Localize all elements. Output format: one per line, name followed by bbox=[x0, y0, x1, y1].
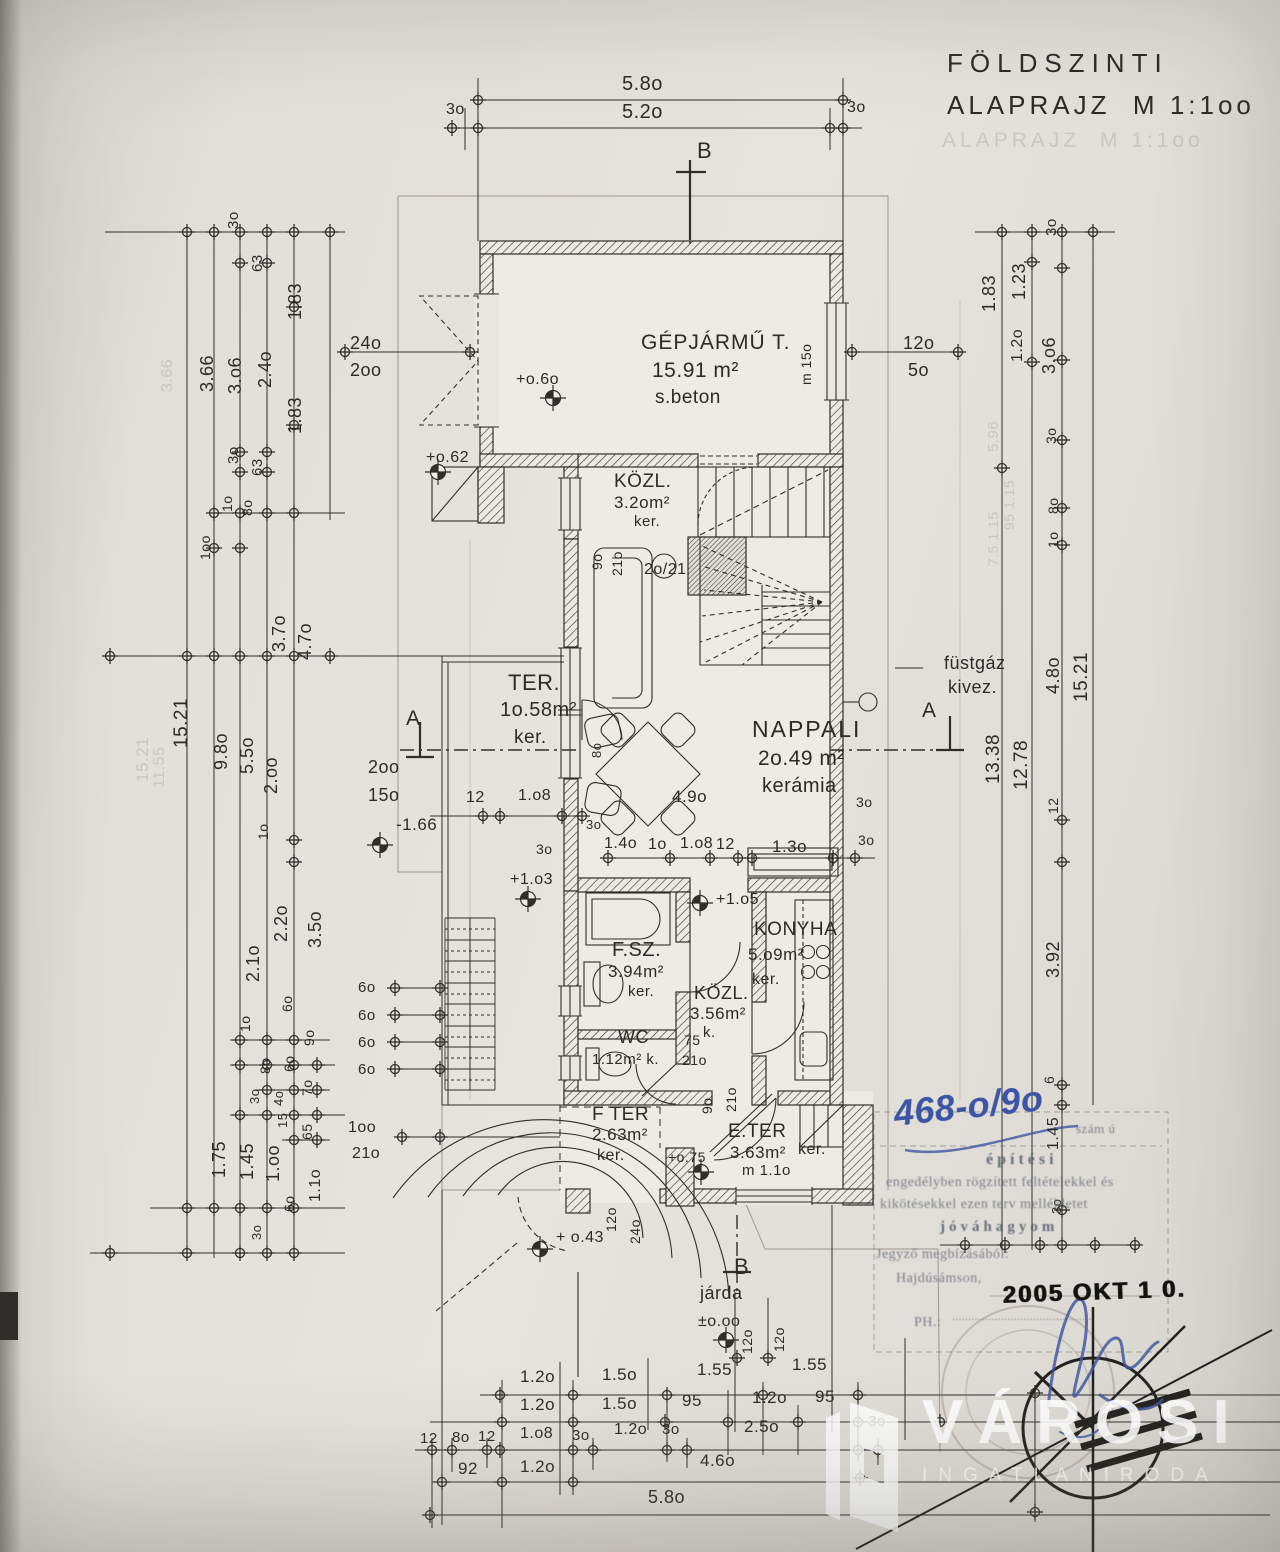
title-line-2: ALAPRAJZ M 1:1oo bbox=[947, 92, 1255, 118]
plan-label: 3o bbox=[662, 1422, 680, 1437]
plan-label: engedélyben rögzített feltételekkel és bbox=[886, 1176, 1114, 1190]
plan-label: ker. bbox=[514, 728, 547, 747]
plan-label: 6o bbox=[282, 1055, 296, 1072]
plan-label: A bbox=[922, 700, 937, 721]
plan-label: 2.4o bbox=[256, 351, 274, 388]
plan-label: 1.55 bbox=[792, 1356, 827, 1373]
plan-label: 9o bbox=[590, 553, 604, 570]
plan-label: 12 bbox=[478, 1429, 496, 1444]
plan-label: 5.8o bbox=[648, 1488, 685, 1506]
plan-label: 12 bbox=[420, 1431, 438, 1446]
plan-label: 3.66 bbox=[160, 359, 176, 392]
plan-label: 1.83 bbox=[980, 275, 998, 312]
plan-label: 12 bbox=[1046, 797, 1060, 814]
plan-label: + o.43 bbox=[556, 1230, 604, 1246]
plan-label: 3.o6 bbox=[226, 357, 244, 394]
plan-label: kivez. bbox=[948, 678, 997, 696]
plan-label: 63 bbox=[250, 458, 265, 476]
plan-label: 3o bbox=[226, 446, 241, 464]
plan-label: 92 bbox=[458, 1460, 478, 1477]
plan-label: 6o bbox=[282, 1195, 296, 1212]
plan-label: 3o bbox=[858, 833, 875, 847]
plan-label: 7.5 1.15 bbox=[986, 511, 1000, 566]
plan-label: 6o bbox=[358, 1062, 376, 1077]
plan-label: 8o bbox=[240, 499, 254, 516]
plan-label: 1o bbox=[256, 823, 270, 840]
plan-label: ker. bbox=[798, 1142, 826, 1158]
plan-label: 12 bbox=[466, 790, 485, 806]
plan-label: 6 bbox=[1042, 1076, 1056, 1084]
plan-label: 1.83 bbox=[286, 283, 304, 320]
plan-label: 1.45 bbox=[238, 1143, 256, 1180]
plan-label: 95 1.15 bbox=[1002, 480, 1016, 530]
plan-label: A bbox=[406, 708, 421, 729]
plan-label: 8o bbox=[452, 1430, 470, 1445]
plan-label: 2.1o bbox=[244, 945, 262, 982]
plan-label: 9.8o bbox=[212, 733, 230, 770]
plan-label: +o.62 bbox=[426, 450, 469, 466]
plan-label: 8o bbox=[1046, 497, 1060, 514]
plan-label: B bbox=[734, 1256, 749, 1278]
plan-label: 5.2o bbox=[622, 102, 663, 122]
plan-label: 1o bbox=[648, 837, 667, 853]
plan-label: F TER bbox=[592, 1105, 649, 1124]
label-layer: FÖLDSZINTIALAPRAJZ M 1:1ooALAPRAJZ M 1:1… bbox=[0, 0, 1280, 1552]
plan-label: 4.9o bbox=[672, 788, 707, 805]
plan-label: TER. bbox=[508, 672, 560, 694]
plan-label: 3o bbox=[856, 795, 873, 809]
plan-label: ALAPRAJZ M 1:1oo bbox=[942, 130, 1204, 151]
plan-label: 6o bbox=[280, 995, 294, 1012]
plan-label: ker. bbox=[752, 972, 780, 988]
plan-label: 21o bbox=[352, 1146, 380, 1162]
plan-label: 3o bbox=[446, 102, 465, 118]
plan-label: 12o bbox=[903, 334, 935, 352]
plan-label: 24o bbox=[628, 1219, 642, 1244]
plan-label: ker. bbox=[634, 514, 660, 529]
plan-label: 1oo bbox=[198, 535, 212, 560]
plan-label: -1.66 bbox=[396, 816, 437, 833]
plan-label: 21o bbox=[610, 551, 624, 576]
plan-label: 6o bbox=[358, 1035, 376, 1050]
plan-label: KÖZL. bbox=[614, 472, 671, 491]
plan-label: jóváhagyom bbox=[940, 1220, 1058, 1235]
plan-label: 3.94m² bbox=[608, 963, 664, 980]
plan-label: ±o.oo bbox=[698, 1314, 740, 1330]
plan-label: m 1.1o bbox=[742, 1163, 791, 1178]
plan-label: 11.55 bbox=[152, 747, 168, 788]
plan-label: GÉPJÁRMŰ T. bbox=[641, 332, 790, 353]
plan-label: 6o bbox=[358, 980, 376, 995]
plan-label: 1.75 bbox=[210, 1141, 228, 1178]
plan-label: PH.: bbox=[914, 1316, 941, 1330]
plan-label: 1.2o bbox=[1010, 329, 1026, 362]
plan-label: 15.21 bbox=[134, 737, 151, 782]
plan-label: 1.o8 bbox=[680, 836, 713, 852]
plan-label: 95 bbox=[682, 1392, 702, 1409]
plan-label: 5.o9m² bbox=[748, 946, 804, 963]
plan-label: 12 bbox=[716, 837, 735, 853]
plan-label: m 15o bbox=[799, 344, 813, 385]
plan-label: s.beton bbox=[655, 388, 721, 407]
plan-label: NAPPALI bbox=[752, 718, 861, 741]
plan-label: 1.2o bbox=[614, 1422, 647, 1438]
plan-label: 15.91 m² bbox=[652, 360, 739, 381]
plan-label: 3.92 bbox=[1044, 941, 1062, 978]
plan-label: +o.6o bbox=[516, 372, 559, 388]
plan-label: 3o bbox=[250, 1225, 263, 1240]
plan-label: +o.75 bbox=[668, 1150, 706, 1164]
plan-label: kikötésekkel ezen terv mellékletet bbox=[880, 1198, 1088, 1212]
plan-label: 3o bbox=[868, 1414, 886, 1429]
plan-label: 1.83 bbox=[286, 397, 304, 434]
plan-label: 75 bbox=[684, 1033, 701, 1047]
plan-label: 1.5o bbox=[602, 1366, 637, 1383]
plan-label: 1.2o bbox=[520, 1396, 555, 1413]
plan-label: 1.12m² k. bbox=[592, 1052, 659, 1067]
plan-label: +1.o5 bbox=[716, 892, 759, 908]
plan-label: 12.78 bbox=[1012, 740, 1031, 790]
plan-label: 3o bbox=[572, 1428, 590, 1443]
plan-label: 3.56m² bbox=[690, 1005, 746, 1022]
plan-label: 12o bbox=[740, 1329, 754, 1354]
plan-label: 3.66 bbox=[198, 355, 216, 392]
plan-label: Hajdúsámson, bbox=[896, 1272, 982, 1286]
plan-label: 1.oo bbox=[264, 1145, 282, 1182]
plan-label: 2o/21 bbox=[644, 562, 687, 578]
plan-label: 4.7o bbox=[296, 623, 314, 660]
plan-label: 1o.58m² bbox=[500, 700, 577, 720]
plan-label: 1.1o bbox=[308, 1169, 324, 1202]
plan-label: 1.55 bbox=[697, 1361, 732, 1378]
plan-label: 3o bbox=[1044, 218, 1059, 236]
plan-label: járda bbox=[700, 1284, 743, 1302]
plan-label: 4.6o bbox=[700, 1452, 735, 1469]
plan-label: 3.o6 bbox=[1040, 337, 1058, 374]
plan-label: 3.5o bbox=[306, 911, 324, 948]
plan-label: 12o bbox=[772, 1327, 786, 1352]
plan-label: k. bbox=[703, 1025, 716, 1040]
plan-label: füstgáz bbox=[944, 654, 1006, 672]
plan-label: 1.5o bbox=[602, 1395, 637, 1412]
handwritten-file-number: 468-o/9o bbox=[892, 1080, 1045, 1131]
plan-label: ........................................… bbox=[952, 1312, 1092, 1323]
plan-label: B bbox=[697, 140, 712, 162]
plan-label: 1.o8 bbox=[520, 1426, 553, 1442]
plan-label: 3o bbox=[536, 842, 553, 856]
plan-label: építési bbox=[986, 1152, 1058, 1168]
plan-label: E.TER bbox=[728, 1122, 786, 1141]
plan-label: 15.21 bbox=[1072, 652, 1091, 702]
plan-label: 1o bbox=[220, 495, 234, 512]
plan-label: 3o bbox=[226, 211, 241, 229]
plan-label: 5.96 bbox=[986, 421, 1001, 452]
plan-label: 1.o8 bbox=[518, 788, 551, 804]
plan-label: 95 bbox=[815, 1388, 835, 1405]
plan-label: 9o bbox=[302, 1029, 316, 1046]
plan-label: 1.2o bbox=[752, 1389, 787, 1406]
plan-label: 15.21 bbox=[172, 698, 191, 748]
title-line-1: FÖLDSZINTI bbox=[947, 50, 1169, 76]
plan-label: 6o bbox=[358, 1008, 376, 1023]
plan-label: 5o bbox=[908, 361, 929, 379]
plan-label: 2oo bbox=[350, 361, 382, 379]
plan-label: 2oo bbox=[368, 758, 400, 776]
plan-label: 1o bbox=[1046, 531, 1060, 548]
plan-label: 1o bbox=[238, 1015, 252, 1032]
floorplan-sheet: FÖLDSZINTIALAPRAJZ M 1:1ooALAPRAJZ M 1:1… bbox=[0, 0, 1280, 1552]
plan-label: 21o bbox=[724, 1087, 738, 1112]
plan-label: 5.5o bbox=[238, 737, 256, 774]
plan-label: 8o bbox=[590, 743, 603, 758]
plan-label: 2o.49 m² bbox=[758, 748, 845, 769]
plan-label: 4.8o bbox=[1044, 657, 1062, 694]
plan-label: 2.oo bbox=[262, 757, 280, 794]
plan-label: KÖZL. bbox=[694, 984, 749, 1002]
plan-label: 4o bbox=[272, 1091, 285, 1106]
plan-label: 1.23 bbox=[1010, 263, 1028, 300]
date-stamp: 2005 OKT 1 0. bbox=[1002, 1278, 1186, 1308]
plan-label: 2.2o bbox=[272, 905, 290, 942]
plan-label: 7o bbox=[300, 1079, 314, 1096]
plan-label: 3o bbox=[248, 1089, 261, 1104]
plan-label: 21o bbox=[682, 1053, 707, 1067]
plan-label: 3.7o bbox=[270, 615, 288, 652]
plan-label: ker. bbox=[628, 984, 654, 999]
plan-label: KONYHA bbox=[754, 920, 837, 939]
plan-label: 2.63m² bbox=[592, 1126, 648, 1143]
plan-label: 3o bbox=[586, 818, 601, 831]
plan-label: 13.38 bbox=[984, 734, 1003, 784]
plan-label: 1.45 bbox=[1046, 1117, 1062, 1150]
plan-label: 3.2om² bbox=[614, 494, 670, 511]
plan-label: 1.2o bbox=[520, 1368, 555, 1385]
plan-label: 2.5o bbox=[744, 1418, 779, 1435]
plan-label: 12o bbox=[604, 1207, 618, 1232]
plan-label: 63 bbox=[250, 254, 265, 272]
plan-label: 9o bbox=[700, 1097, 714, 1114]
plan-label: 5.8o bbox=[622, 74, 663, 94]
plan-label: +1.o3 bbox=[510, 872, 553, 888]
plan-label: 3o bbox=[1044, 427, 1058, 444]
plan-label: 1.4o bbox=[604, 836, 637, 852]
plan-label: Jegyző megbízásából: bbox=[876, 1248, 1009, 1262]
plan-label: 1oo bbox=[348, 1120, 376, 1136]
plan-label: 15o bbox=[368, 786, 400, 804]
plan-label: 3o bbox=[847, 100, 866, 116]
plan-label: F.SZ. bbox=[612, 940, 661, 960]
plan-label: 15 bbox=[276, 1113, 289, 1128]
plan-label: 1.3o bbox=[772, 838, 807, 855]
plan-label: ker. bbox=[597, 1148, 625, 1164]
plan-label: 65 bbox=[300, 1123, 314, 1140]
plan-label: szám ú bbox=[1076, 1122, 1115, 1135]
plan-label: WC bbox=[618, 1028, 649, 1046]
plan-label: 3.63m² bbox=[730, 1144, 786, 1161]
plan-label: 8o bbox=[258, 1057, 272, 1074]
plan-label: 1.2o bbox=[520, 1458, 555, 1475]
plan-label: kerámia bbox=[762, 776, 837, 796]
plan-label: 24o bbox=[350, 334, 382, 352]
